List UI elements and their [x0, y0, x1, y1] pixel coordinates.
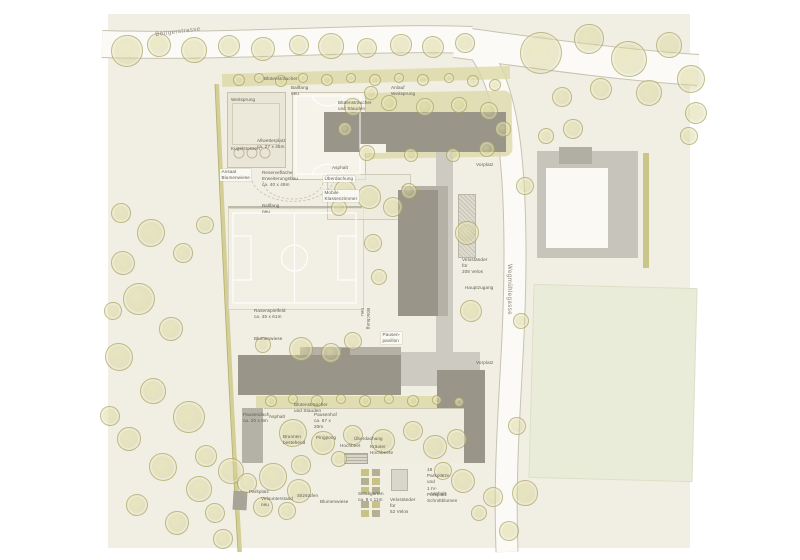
- label-sitzstufen: Sitzstufen: [297, 493, 318, 499]
- garden-bed: [361, 510, 369, 517]
- label-asphalt-1: Asphalt: [332, 165, 348, 171]
- tree-icon: [181, 37, 207, 63]
- tree-icon: [336, 394, 346, 404]
- tree-icon: [289, 35, 309, 55]
- tree-icon: [455, 221, 479, 245]
- tree-icon: [173, 243, 193, 263]
- label-pausendach: Pausendach ca. 20 x 8m: [243, 412, 270, 424]
- tree-icon: [680, 127, 698, 145]
- tree-icon: [401, 183, 417, 199]
- tree-icon: [291, 455, 311, 475]
- tree-icon: [479, 141, 495, 157]
- tree-icon: [173, 401, 205, 433]
- tree-icon: [390, 34, 412, 56]
- tree-icon: [383, 197, 403, 217]
- tree-icon: [298, 73, 308, 83]
- tree-icon: [344, 332, 362, 350]
- tree-icon: [489, 79, 501, 91]
- tree-icon: [499, 521, 519, 541]
- tree-icon: [394, 73, 404, 83]
- label-asphalt-2: Asphalt: [269, 414, 285, 420]
- label-pausenhof: Pausenhof ca. 67 x 20m: [314, 412, 337, 431]
- garden-bed: [361, 478, 369, 485]
- tree-icon: [265, 395, 277, 407]
- tree-icon: [233, 74, 245, 86]
- label-schnittblumen: Schnittblumen: [427, 498, 457, 504]
- tree-icon: [251, 37, 275, 61]
- label-hauptzugang: Hauptzugang: [465, 285, 493, 291]
- label-bluetenstraeucher-top: Blütensträucher: [264, 76, 298, 82]
- tree-icon: [512, 480, 538, 506]
- label-kraeuter-hochbeete: Kräuter Hochbeete: [370, 444, 393, 456]
- label-brunnen-bestehend: Brunnen bestehend: [283, 434, 305, 446]
- tree-icon: [359, 145, 375, 161]
- tree-icon: [422, 36, 444, 58]
- garden-bed: [361, 469, 369, 476]
- tree-icon: [403, 421, 423, 441]
- tree-icon: [432, 395, 442, 405]
- label-parkplatz: Parkplatz: [249, 489, 269, 495]
- garden-bed: [372, 469, 380, 476]
- tree-icon: [105, 343, 133, 371]
- tree-icon: [467, 75, 479, 87]
- tree-icon: [111, 251, 135, 275]
- tree-icon: [574, 24, 604, 54]
- label-velostaender-52: Veloständer für 52 Velos: [390, 497, 415, 516]
- tree-icon: [149, 453, 177, 481]
- label-bluetenstraeucher-stauden-1: Blütensträucher und Stauden: [338, 100, 372, 112]
- tree-icon: [126, 494, 148, 516]
- label-vorplatz-1: Vorplatz: [476, 162, 493, 168]
- tree-icon: [611, 41, 647, 77]
- tree-icon: [513, 313, 529, 329]
- label-pausenpavillon: Pausen- pavillon: [381, 332, 402, 344]
- tree-icon: [357, 38, 377, 58]
- tree-icon: [205, 503, 225, 523]
- label-velounterstand-neu: Velounterstand neu: [261, 496, 293, 508]
- tree-icon: [100, 406, 120, 426]
- label-ballfang-neu-1: Ballfang neu: [291, 85, 308, 97]
- label-kugelstossen: Kugelstossen: [231, 146, 260, 152]
- tree-icon: [455, 33, 475, 53]
- tree-icon: [369, 74, 381, 86]
- label-anlauf-weitsprung: Anlauf Weitsprung: [391, 85, 415, 97]
- tree-icon: [423, 435, 447, 459]
- tree-icon: [404, 148, 418, 162]
- tree-icon: [446, 148, 460, 162]
- tree-icon: [346, 73, 356, 83]
- tree-icon: [104, 302, 122, 320]
- tree-icon: [381, 95, 397, 111]
- label-blumenwiese-2: Blumenwiese: [320, 499, 348, 505]
- label-allwetterplatz: Allwetterplatz ca. 27 x 45m: [257, 138, 286, 150]
- label-ueberdachung-2: Überdachung: [354, 436, 383, 442]
- tree-icon: [289, 337, 313, 361]
- tree-icon: [516, 177, 534, 195]
- label-weitsprung: Weitsprung: [231, 97, 255, 103]
- tree-icon: [159, 317, 183, 341]
- tree-icon: [407, 395, 419, 407]
- tree-icon: [451, 469, 475, 493]
- tree-icon: [321, 343, 341, 363]
- tree-icon: [117, 427, 141, 451]
- tree-icon: [123, 283, 155, 315]
- tree-icon: [371, 269, 387, 285]
- soccer-field-lines: [233, 213, 356, 303]
- tree-icon: [451, 97, 467, 113]
- label-ansaat-blumenwiese: Ansaat Blumenwiese: [220, 169, 251, 181]
- tree-icon: [259, 463, 287, 491]
- label-hochbeet: Hochbeet: [340, 443, 360, 449]
- tree-icon: [538, 128, 554, 144]
- tree-icon: [656, 32, 682, 58]
- tree-icon: [483, 487, 503, 507]
- tree-icon: [195, 445, 217, 467]
- tree-icon: [338, 122, 352, 136]
- label-reserveflaeche: Reservefläche Erweiterungsbau ca. 40 x 4…: [262, 170, 298, 189]
- label-asphalt-3: Asphalt: [430, 491, 446, 497]
- site-plan: BlütensträucherWeitsprungKugelstossenBal…: [0, 0, 800, 560]
- label-pingpong: Pingpong: [316, 435, 336, 441]
- garden-bed: [372, 478, 380, 485]
- label-mobile-klassenzimmer: Mobile Klassenzimmer: [323, 190, 359, 202]
- tree-icon: [111, 203, 131, 223]
- tree-icon: [196, 216, 214, 234]
- tree-icon: [685, 102, 707, 124]
- tree-icon: [416, 98, 434, 116]
- tree-icon: [357, 185, 381, 209]
- tree-icon: [447, 429, 467, 449]
- tree-icon: [508, 417, 526, 435]
- tree-icon: [364, 234, 382, 252]
- garden-bed: [372, 510, 380, 517]
- tree-icon: [384, 394, 394, 404]
- label-ballfang-neu-2: Ballfang neu: [262, 203, 279, 215]
- tree-icon: [552, 87, 572, 107]
- tree-icon: [321, 74, 333, 86]
- tree-icon: [471, 505, 487, 521]
- label-schulgarten: Schulgarten ca. 8 x 11m: [358, 491, 384, 503]
- label-rasenspielfeld: Rasenspielfeld ca. 45 x 61m: [254, 308, 286, 320]
- tree-icon: [186, 476, 212, 502]
- tree-icon: [331, 200, 347, 216]
- label-vorplatz-2: Vorplatz: [476, 360, 493, 366]
- tree-icon: [364, 86, 378, 100]
- tree-icon: [636, 80, 662, 106]
- tree-icon: [454, 397, 464, 407]
- tree-icon: [137, 219, 165, 247]
- label-ueberdachung-1: Überdachung: [323, 176, 355, 182]
- tree-icon: [417, 74, 429, 86]
- tree-icon: [444, 73, 454, 83]
- tree-icon: [140, 378, 166, 404]
- label-blumenwiese-1: Blumenwiese: [254, 336, 282, 342]
- tree-icon: [318, 33, 344, 59]
- tree-icon: [460, 300, 482, 322]
- tree-icon: [254, 73, 264, 83]
- street-wegmuehlegasse: Wegmühlegasse: [506, 264, 512, 315]
- tree-icon: [677, 65, 705, 93]
- label-velostaender-208: Veloständer für 208 Velos: [462, 257, 487, 276]
- tree-icon: [590, 78, 612, 100]
- tree-icon: [520, 32, 562, 74]
- label-boeschung-neu: Böschung neu: [359, 308, 371, 329]
- tree-icon: [218, 35, 240, 57]
- tree-icon: [111, 35, 143, 67]
- tree-icon: [359, 395, 371, 407]
- tree-icon: [331, 451, 347, 467]
- tree-icon: [495, 121, 511, 137]
- tree-icon: [563, 119, 583, 139]
- tree-icon: [165, 511, 189, 535]
- tree-icon: [213, 529, 233, 549]
- tree-icon: [480, 102, 498, 120]
